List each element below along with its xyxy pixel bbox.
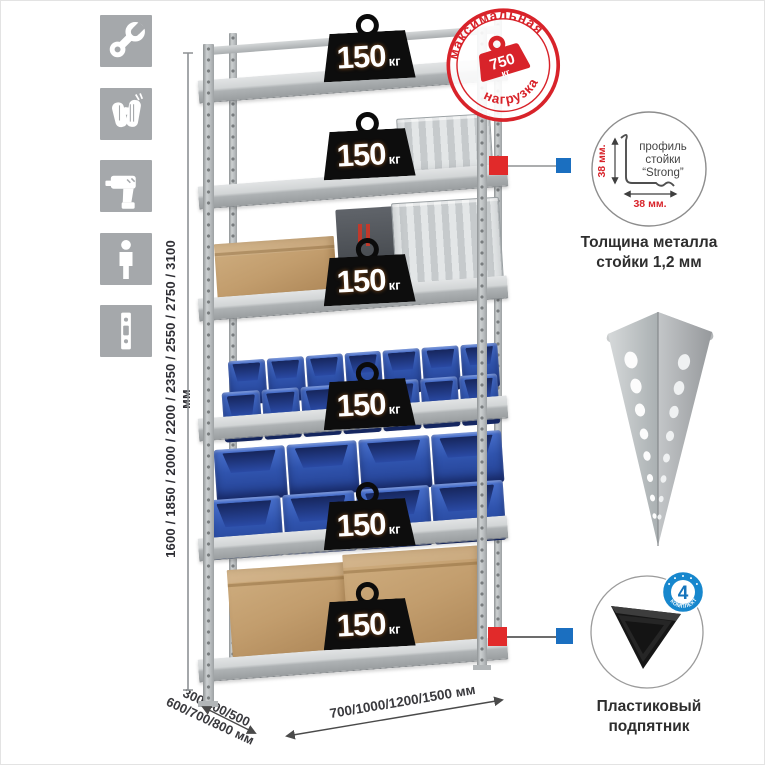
shelf-load-weight: 150кг bbox=[320, 110, 415, 181]
badge-value: 4 bbox=[678, 583, 689, 604]
load-value: 150 bbox=[336, 40, 386, 74]
profile-label-line1: профиль bbox=[639, 141, 687, 153]
load-value: 150 bbox=[336, 264, 386, 298]
shelf-load-weight: 150кг bbox=[320, 12, 415, 83]
post-footplate bbox=[198, 701, 218, 707]
callout-marker-red bbox=[488, 627, 507, 646]
shelf-load-weight: 150кг bbox=[320, 580, 415, 651]
shelving-product-illustration: 1600 / 1850 / 2000 / 2200 / 2350 / 2550 … bbox=[0, 0, 765, 765]
foot-caption: Пластиковый подпятник bbox=[570, 697, 728, 737]
drill-icon bbox=[100, 160, 152, 212]
post-footplate bbox=[473, 665, 491, 670]
load-unit: кг bbox=[388, 401, 401, 417]
angle-post-render bbox=[598, 298, 723, 553]
load-value: 150 bbox=[336, 508, 386, 542]
shelf-load-weight: 150кг bbox=[320, 480, 415, 551]
load-unit: кг bbox=[388, 277, 401, 293]
storage-bin bbox=[214, 445, 288, 502]
profile-dim-horizontal: 38 мм. bbox=[633, 198, 666, 210]
load-unit: кг bbox=[388, 151, 401, 167]
foot-caption-line1: Пластиковый bbox=[597, 698, 702, 715]
rack-post-front-left bbox=[203, 44, 214, 705]
wrench-glyph bbox=[100, 15, 152, 67]
post-profile-detail: 38 мм. 38 мм. профиль стойки “Strong” bbox=[588, 108, 710, 230]
load-value: 150 bbox=[336, 388, 386, 422]
person-icon bbox=[100, 233, 152, 285]
profile-caption-line1: Толщина металла bbox=[581, 234, 718, 251]
profile-label-line2: стойки bbox=[645, 154, 680, 166]
person-glyph bbox=[100, 233, 152, 285]
shelf-load-weight: 150кг bbox=[320, 360, 415, 431]
load-value: 150 bbox=[336, 608, 386, 642]
drill-glyph bbox=[100, 160, 152, 212]
profile-caption-line2: стойки 1,2 мм bbox=[596, 254, 701, 271]
callout-marker-blue bbox=[556, 628, 573, 644]
gloves-glyph bbox=[100, 88, 152, 140]
wrench-icon bbox=[100, 15, 152, 67]
callout-marker-red bbox=[489, 156, 508, 175]
gloves-icon bbox=[100, 88, 152, 140]
profile-caption: Толщина металла стойки 1,2 мм bbox=[570, 233, 728, 273]
profile-dim-vertical: 38 мм. bbox=[596, 144, 608, 177]
width-dimension-label: 700/1000/1200/1500 мм bbox=[295, 676, 510, 726]
load-unit: кг bbox=[388, 521, 401, 537]
callout-marker-blue bbox=[556, 158, 571, 173]
load-unit: кг bbox=[388, 53, 401, 69]
load-value: 150 bbox=[336, 138, 386, 172]
height-dimension-label: 1600 / 1850 / 2000 / 2200 / 2350 / 2550 … bbox=[163, 229, 193, 569]
storage-bin bbox=[431, 430, 505, 487]
shelf-load-weight: 150кг bbox=[320, 236, 415, 307]
load-unit: кг bbox=[388, 621, 401, 637]
plastic-foot-detail: в комплекте 4 bbox=[586, 570, 708, 692]
foot-caption-line2: подпятник bbox=[608, 718, 689, 735]
profile-label-line3: “Strong” bbox=[642, 167, 684, 179]
perforated-post-glyph bbox=[100, 305, 152, 357]
perforated-post-icon bbox=[100, 305, 152, 357]
